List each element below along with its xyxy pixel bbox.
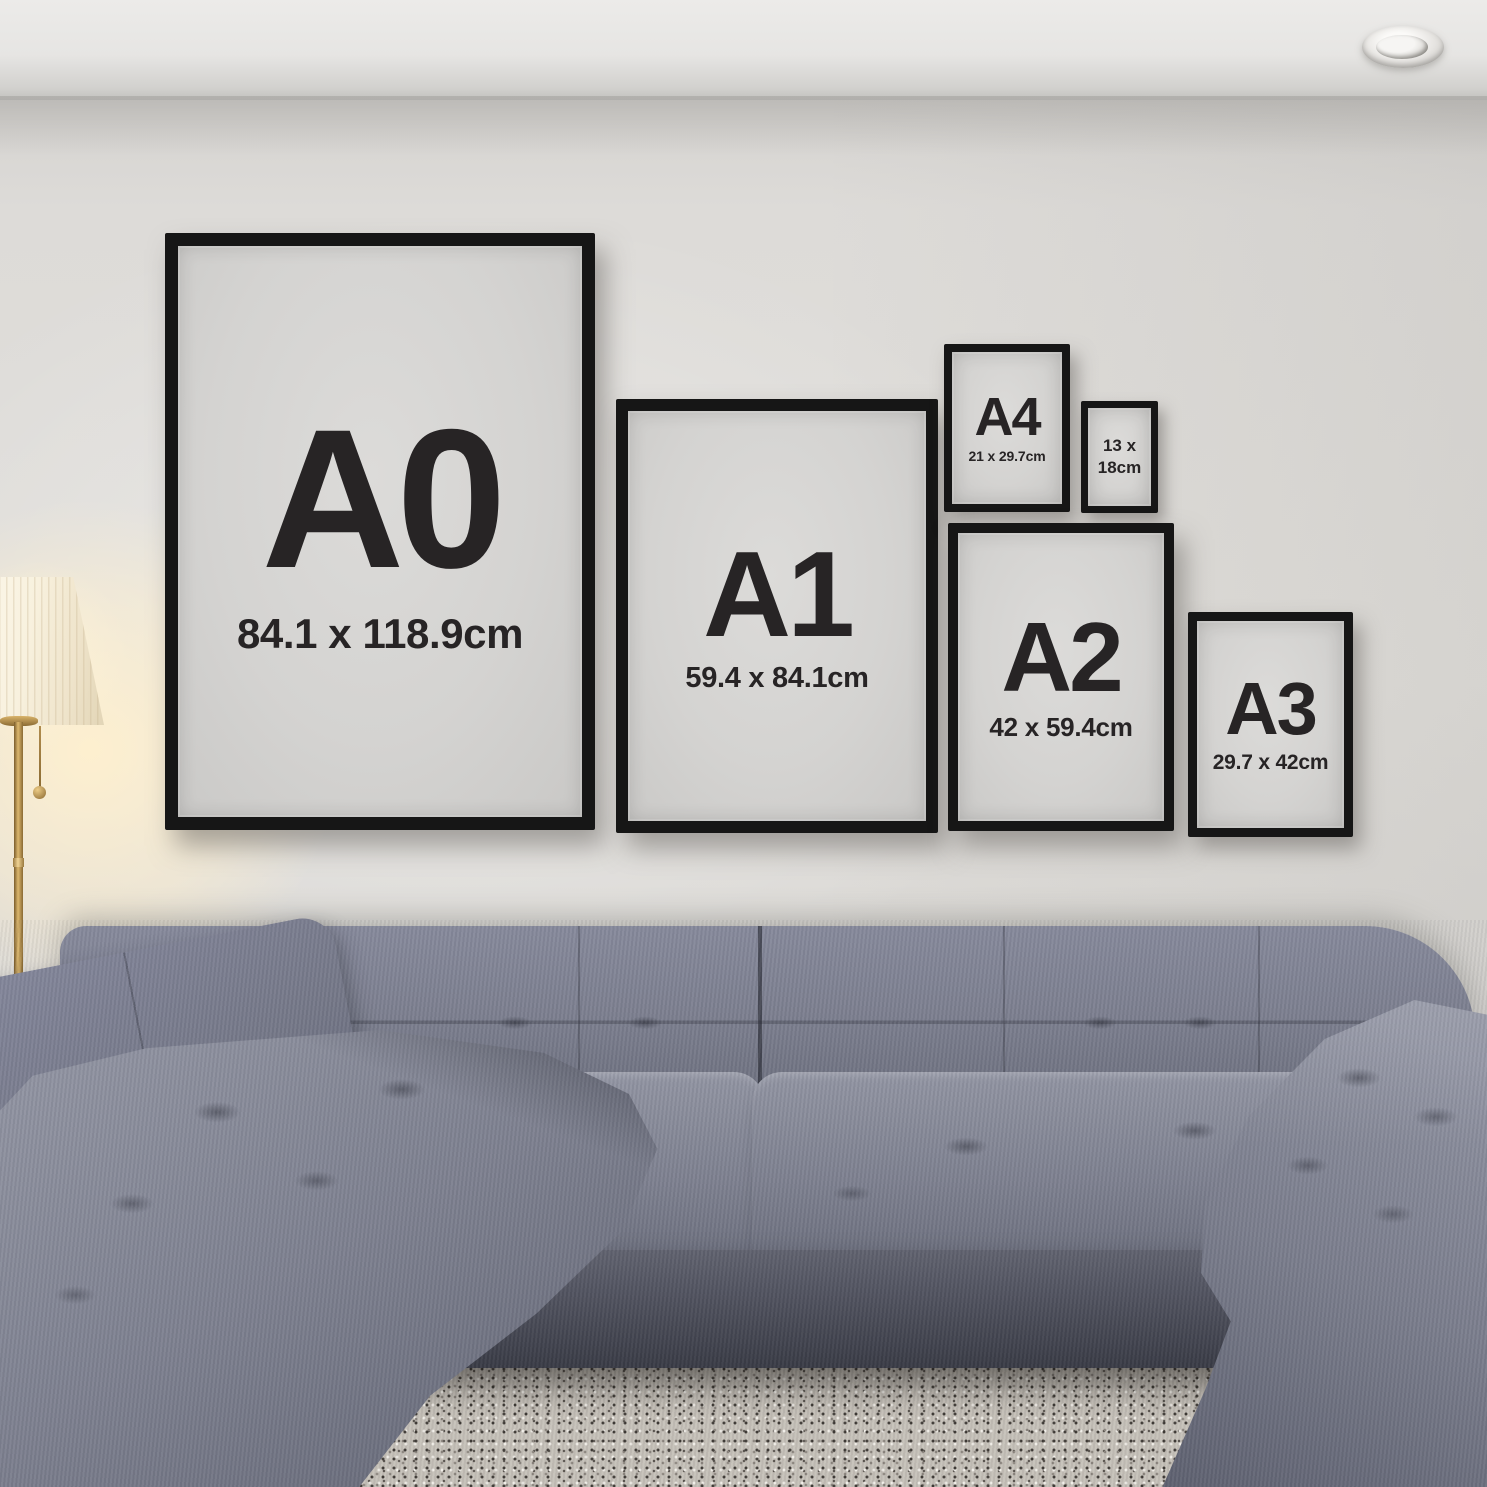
recessed-ceiling-light <box>1362 26 1444 68</box>
recessed-light-trim <box>1376 35 1428 59</box>
living-room-scene: A0 84.1 x 118.9cm A1 59.4 x 84.1cm A4 21… <box>0 0 1487 1487</box>
size-code-a1: A1 <box>703 537 851 653</box>
poster-frame-a2: A2 42 x 59.4cm <box>948 523 1174 831</box>
size-dims-a4: 21 x 29.7cm <box>968 448 1045 464</box>
size-dims-a1: 59.4 x 84.1cm <box>685 662 868 695</box>
floor-lamp-pull-chain-ball <box>33 786 46 799</box>
size-dims-a2: 42 x 59.4cm <box>989 712 1132 743</box>
poster-mat-a4: A4 21 x 29.7cm <box>952 352 1062 504</box>
ceiling-wall-shadow <box>0 96 1487 156</box>
poster-frame-a0: A0 84.1 x 118.9cm <box>165 233 595 830</box>
size-dims-13x18: 13 x 18cm <box>1098 435 1141 479</box>
ceiling <box>0 0 1487 100</box>
poster-mat-13x18: 13 x 18cm <box>1088 408 1151 506</box>
floor-lamp-pole-joint <box>13 858 24 867</box>
poster-frame-a1: A1 59.4 x 84.1cm <box>616 399 938 833</box>
poster-mat-a1: A1 59.4 x 84.1cm <box>628 411 926 821</box>
poster-frame-13x18: 13 x 18cm <box>1081 401 1158 513</box>
size-code-a2: A2 <box>1001 611 1120 704</box>
size-dims-a3: 29.7 x 42cm <box>1213 751 1329 775</box>
poster-mat-a0: A0 84.1 x 118.9cm <box>178 246 582 817</box>
size-code-a0: A0 <box>261 405 498 593</box>
size-dims-13x18-line1: 13 x <box>1098 435 1141 457</box>
size-dims-13x18-line2: 18cm <box>1098 457 1141 479</box>
floor-lamp-pole <box>14 722 23 1012</box>
size-code-a3: A3 <box>1225 674 1316 744</box>
poster-frame-a4: A4 21 x 29.7cm <box>944 344 1070 512</box>
poster-mat-a3: A3 29.7 x 42cm <box>1197 621 1344 828</box>
poster-mat-a2: A2 42 x 59.4cm <box>958 533 1164 821</box>
poster-frame-a3: A3 29.7 x 42cm <box>1188 612 1353 837</box>
size-code-a4: A4 <box>974 392 1039 443</box>
size-dims-a0: 84.1 x 118.9cm <box>237 610 523 658</box>
floor-lamp-pull-chain <box>39 726 41 788</box>
